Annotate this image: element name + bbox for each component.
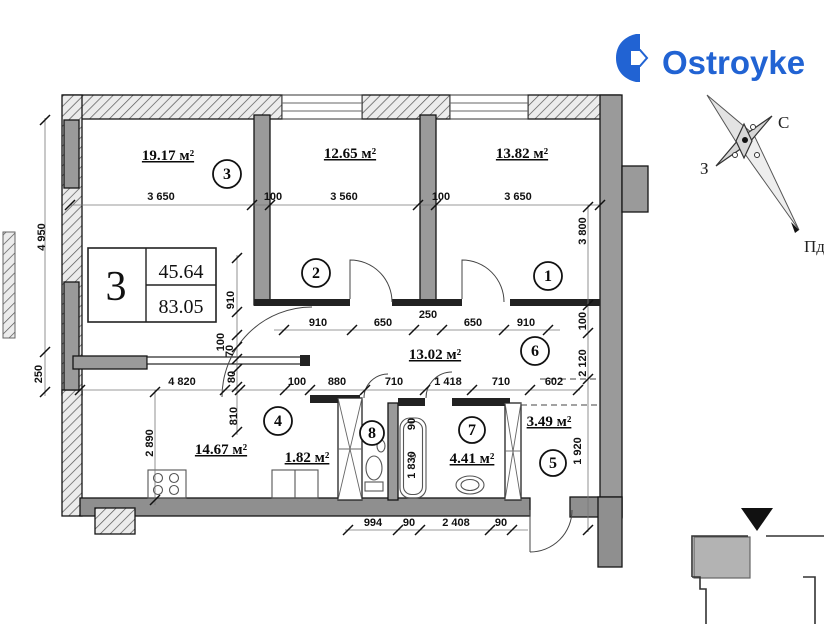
wall-entry-side <box>598 497 622 567</box>
wall-room2-room1 <box>420 115 436 305</box>
area-label-room3: 19.17 м² <box>142 148 195 164</box>
floor-plan-drawing: 3 650 100 3 560 100 3 650 910 650 250 65… <box>0 0 824 624</box>
compass-north-label: С <box>778 113 789 132</box>
partition-end <box>300 355 310 366</box>
room-number: 2 <box>312 265 320 282</box>
walls <box>3 95 648 567</box>
compass-rose: С З Пд <box>700 95 824 256</box>
unit-highlight <box>694 537 750 578</box>
kitchen-appliance-icon <box>272 470 318 498</box>
compass-south-label: Пд <box>804 237 824 256</box>
dim-label: 250 <box>419 309 437 321</box>
balcony-outline <box>3 232 15 338</box>
dim-label: 90 <box>403 517 415 529</box>
dim-label: 2 120 <box>577 349 589 377</box>
room-number: 6 <box>531 343 539 360</box>
dim-label: 710 <box>492 376 510 388</box>
room-count: 3 <box>106 264 127 310</box>
wall-hall-top-a <box>254 299 350 306</box>
wall-room3-kitchen <box>73 356 147 369</box>
dim-label: 100 <box>288 376 306 388</box>
dim-label: 250 <box>33 365 45 383</box>
dim-label: 2 408 <box>442 517 470 529</box>
area-label-room6: 13.02 м² <box>409 347 462 363</box>
vent-shaft-b <box>505 403 521 500</box>
room-number: 8 <box>368 425 376 442</box>
door-room2 <box>350 260 392 302</box>
area-label-room8: 1.82 м² <box>285 450 330 466</box>
dim-label: 3 560 <box>330 191 358 203</box>
sink-icon <box>456 476 484 494</box>
dim-label: 810 <box>228 407 240 425</box>
floor-plan-page: 3 650 100 3 560 100 3 650 910 650 250 65… <box>0 0 824 624</box>
wall-hall-top-d <box>510 299 600 306</box>
window-room2 <box>282 95 362 119</box>
area-label-room2: 12.65 м² <box>324 146 377 162</box>
unit-info-table: 3 45.64 83.05 <box>88 248 216 322</box>
dim-label: 3 650 <box>504 191 532 203</box>
dim-label: 4 820 <box>168 376 196 388</box>
area-label-room5: 3.49 м² <box>527 414 572 430</box>
dim-label: 1 418 <box>434 376 462 388</box>
total-area: 83.05 <box>159 296 204 318</box>
dim-label: 90 <box>495 517 507 529</box>
room-number: 7 <box>468 422 476 439</box>
vent-shaft-a <box>338 398 362 500</box>
dim-label: 90 <box>406 418 418 430</box>
wall-wc-bath <box>388 403 398 500</box>
area-label-room7: 4.41 м² <box>450 451 495 467</box>
window-room3 <box>64 120 79 188</box>
area-label-room1: 13.82 м² <box>496 146 549 162</box>
door-room1 <box>462 260 504 302</box>
dim-label: 1 830 <box>406 451 418 479</box>
wall-right-pier <box>622 166 648 212</box>
dim-label: 910 <box>309 317 327 329</box>
dim-label: 650 <box>464 317 482 329</box>
balcony-door <box>64 282 79 390</box>
dim-label: 100 <box>432 191 450 203</box>
toilet-icon <box>365 440 385 491</box>
building-outline <box>803 577 815 624</box>
wall-left-lower <box>62 390 82 516</box>
wall-right <box>600 95 622 518</box>
wall-hall-top-c <box>436 299 462 306</box>
wall-top-mid <box>362 95 450 119</box>
wall-bath-top-a <box>398 398 425 406</box>
wall-hall-top-b <box>392 299 436 306</box>
dim-label: 70 <box>224 345 236 357</box>
dim-label: 3 650 <box>147 191 175 203</box>
wall-bath-top-b <box>452 398 510 406</box>
logo-icon <box>616 34 647 82</box>
wall-bottom <box>80 498 530 516</box>
room-number: 4 <box>274 413 282 430</box>
building-outline <box>692 577 706 624</box>
dim-label: 650 <box>374 317 392 329</box>
location-marker-icon <box>741 508 773 531</box>
dim-label: 910 <box>517 317 535 329</box>
living-area: 45.64 <box>159 261 204 283</box>
dim-label: 602 <box>545 376 563 388</box>
compass-west-label: З <box>700 159 709 178</box>
room-number: 3 <box>223 166 231 183</box>
door-entrance <box>530 510 572 552</box>
wall-room3-room2 <box>254 115 270 305</box>
wall-pilaster <box>95 508 135 534</box>
dim-label: 100 <box>264 191 282 203</box>
window-room1 <box>450 95 528 119</box>
dim-label: 2 890 <box>144 429 156 457</box>
dim-label: 4 950 <box>36 223 48 251</box>
dim-label: 100 <box>577 312 589 330</box>
logo-text: Ostroyke <box>662 44 805 81</box>
dim-label: 880 <box>328 376 346 388</box>
room-number: 5 <box>549 455 557 472</box>
dim-label: 710 <box>385 376 403 388</box>
wall-top-left <box>63 95 282 119</box>
stove-icon <box>148 470 186 498</box>
dim-label: 80 <box>226 371 238 383</box>
dim-label: 910 <box>225 291 237 309</box>
room-number: 1 <box>544 268 552 285</box>
dim-label: 1 920 <box>572 437 584 465</box>
dim-label: 3 800 <box>577 217 589 245</box>
dim-label: 994 <box>364 517 383 529</box>
logo[interactable]: Ostroyke <box>616 34 805 82</box>
building-locator <box>692 508 824 624</box>
area-label-room4: 14.67 м² <box>195 442 248 458</box>
